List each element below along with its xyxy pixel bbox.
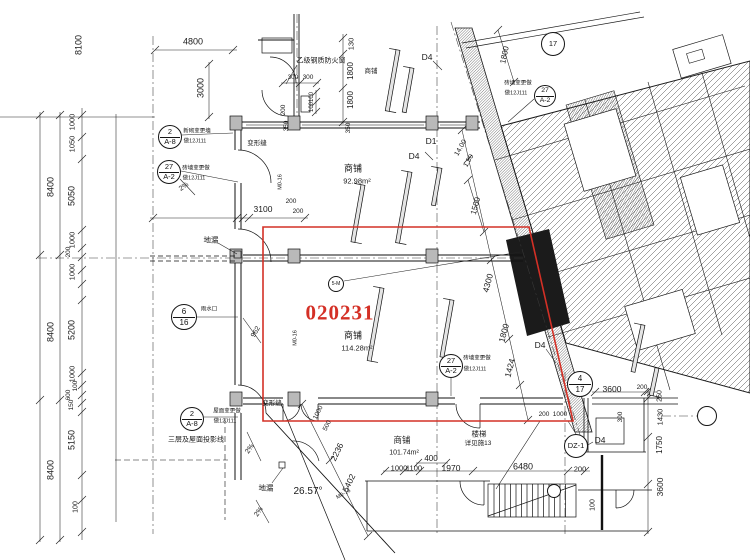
dim-label: 100: [309, 102, 315, 112]
dim-label: 350: [346, 123, 353, 134]
dim-label: 5150: [68, 430, 77, 450]
dim-label: 1100: [406, 464, 422, 472]
dim-label: 100: [309, 92, 315, 102]
floor-drain-symbol: [279, 462, 285, 468]
door-tag-D1: D1: [426, 137, 437, 146]
dim-label: 1970: [442, 464, 461, 473]
detail-ref-2-A8: 2A-8: [180, 407, 204, 431]
stair-note: 详见施13: [465, 441, 492, 448]
dim-label: 200: [637, 385, 648, 392]
detail-ref-27-A2: 27A-2: [157, 160, 181, 184]
dim-label: 3600: [656, 478, 665, 497]
expansion-joint-label: 变形缝: [247, 141, 267, 148]
room-area-highlight: 114.28m²: [341, 344, 372, 352]
door-arc: [238, 229, 271, 262]
detail-ref-27-A2: 27A-2: [534, 85, 556, 107]
bubble-bottom-text: A-2: [536, 97, 554, 105]
door-tag-D4: D4: [409, 152, 420, 161]
fire-window-note: 乙级钢质防火窗: [297, 58, 346, 65]
dim-label: 100: [73, 381, 80, 392]
detail-ref-6-16: 616: [171, 304, 197, 330]
dim-label: 130: [347, 38, 355, 51]
bubble-note: 新砌变更墙: [183, 129, 211, 135]
bubble-text: 5-M: [329, 282, 343, 287]
projection-line: [115, 418, 228, 520]
door-tag-D4: D4: [595, 436, 606, 445]
ramp-edge: [281, 404, 345, 560]
ramp-edge: [266, 413, 395, 553]
bubble-top-text: 6: [173, 307, 195, 318]
bubble-note: 做12J111: [464, 367, 487, 373]
bubble-text: DZ-1: [565, 442, 587, 449]
stair-ref-bubble: [547, 484, 561, 498]
bubble-top-text: 4: [569, 374, 591, 385]
highlight-room-number: 020231: [306, 303, 375, 324]
bubble-bottom-text: 16: [173, 318, 195, 328]
dim-label: 1000: [391, 464, 408, 472]
door-tag-M016: M0-16: [293, 330, 299, 346]
bubble-note: 砖墙变更做: [182, 166, 210, 172]
room-label-shop-highlight: 商铺: [344, 332, 362, 341]
bubble-note: 屋面变更做: [213, 409, 241, 415]
dim-label: 5200: [68, 320, 77, 340]
dim-label: 100: [590, 499, 597, 511]
dim-label: 300: [618, 412, 625, 423]
dim-label: 200: [281, 105, 288, 116]
dim-label: 5050: [68, 186, 77, 206]
dim-label: 1000: [553, 412, 567, 419]
detail-ref-2-A8: 2A-8: [158, 125, 182, 149]
plan-linework: [0, 0, 750, 560]
angle-dimension: 26.57°: [293, 487, 322, 497]
room-label-shop-lower: 商铺: [393, 436, 410, 445]
bubble-top-text: 27: [536, 87, 554, 97]
dim-label: 150: [69, 400, 76, 411]
dim-label: 300: [303, 75, 314, 82]
dim-label: 8100: [75, 35, 84, 55]
dim-label: 200: [286, 199, 297, 206]
dim-label: 8400: [47, 460, 56, 480]
bubble-bottom-text: A-8: [182, 420, 202, 429]
dim-label: 1750: [656, 436, 664, 454]
floor-plan-canvas: 8100840084008400100010505050100020010005…: [0, 0, 750, 560]
dim-label: 100: [73, 501, 80, 513]
dim-label: 3000: [197, 78, 206, 98]
dim-label: 250: [657, 390, 664, 402]
floor-drain-label: 地漏: [204, 236, 219, 244]
stair-label: 楼梯: [472, 430, 487, 438]
projection-line-note: 三层及屋面投影线: [168, 437, 224, 444]
angle-arc: [292, 441, 319, 461]
tag-5M: 5-M: [328, 276, 344, 292]
expansion-joint-label: 变形缝: [262, 401, 282, 408]
dim-label: 6480: [513, 463, 533, 472]
room-area-lower: 101.74m²: [389, 450, 419, 457]
door-arc: [283, 404, 300, 421]
dim-label: 商铺: [365, 69, 378, 76]
dim-label: 200: [293, 209, 304, 216]
dim-label: 1000: [68, 114, 76, 131]
bubble-note: 做12J111: [505, 91, 528, 97]
bubble-note: 做12J111: [184, 139, 207, 145]
door-arc: [616, 490, 634, 508]
dim-label: 8400: [47, 322, 56, 342]
dim-label: 200: [539, 412, 550, 419]
dim-label: 1050: [68, 136, 76, 153]
bubble-note: 做12J111: [183, 176, 206, 182]
dim-label: 3100: [254, 205, 273, 214]
door-arc: [238, 150, 271, 183]
bubble-bottom-text: A-2: [159, 173, 179, 182]
dim-label: 1430: [656, 409, 664, 426]
existing-building-hatch: [455, 12, 750, 432]
door-tag-M016: M0-16: [278, 174, 284, 190]
dim-label: 350: [284, 121, 291, 132]
bubble-bottom-text: 17: [569, 385, 591, 395]
room-label-shop-upper: 商铺: [344, 165, 362, 174]
dim-label: 300: [288, 75, 299, 82]
door-arc: [456, 404, 480, 428]
dim-label: 8400: [47, 177, 56, 197]
bubble-note: 砖墙变更做: [463, 356, 491, 362]
room-area-upper: 92.98m²: [343, 177, 371, 185]
grid-bubble-right: [697, 406, 717, 426]
grid-bubble-17: 17: [541, 32, 565, 56]
dim-label: 200: [66, 247, 73, 258]
floor-drain-label: 地漏: [259, 484, 274, 492]
bubble-note: 砖墙变更做: [504, 81, 532, 87]
door-tag-D4: D4: [422, 53, 433, 62]
dim-label: 400: [424, 455, 437, 463]
bubble-note: 雨水口: [201, 307, 218, 313]
dim-label: 1800: [347, 91, 355, 109]
dim-label: 4800: [183, 38, 203, 47]
bubble-bottom-text: A-2: [441, 367, 461, 376]
detail-ref-27-A2: 27A-2: [439, 354, 463, 378]
bubble-text: 17: [542, 40, 564, 47]
door-tag-D4: D4: [535, 341, 546, 350]
dim-label: 200: [574, 465, 587, 473]
bubble-note: 做12J111: [214, 419, 237, 425]
door-arc: [460, 481, 484, 505]
bubble-bottom-text: A-8: [160, 138, 180, 147]
grid-bubble-4-17: 417: [567, 371, 593, 397]
dim-label: 1800: [347, 62, 355, 80]
expansion-joint-line: [150, 256, 235, 261]
dim-label: 1000: [68, 264, 76, 281]
dim-label: 3600: [603, 385, 622, 394]
column-ref-DZ1: DZ-1: [564, 434, 588, 458]
